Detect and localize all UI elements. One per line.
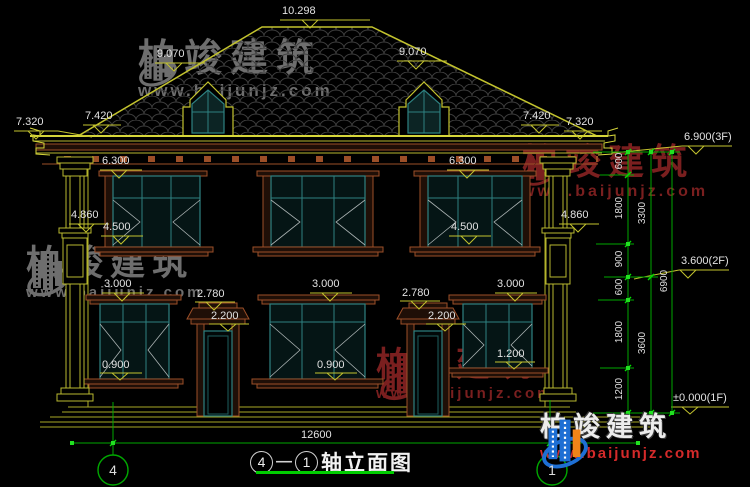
elevation-label-win1f-sill-center: 0.900 <box>317 360 345 371</box>
footer-brand: 柏竣建筑 www.baijunjz.com <box>540 413 701 462</box>
elevation-label-door-cap-right: 2.780 <box>402 288 430 299</box>
elevation-label-ridge: 10.298 <box>282 6 316 17</box>
dim-seg-1800-lower: 1800 <box>615 310 625 354</box>
elevation-label-roof-left: 9.070 <box>157 49 185 60</box>
elevation-label-door-head-left: 2.200 <box>211 311 239 322</box>
elevation-label-roof-right: 9.070 <box>399 47 427 58</box>
dim-overall-6900: 6900 <box>660 259 670 303</box>
window-1f-center <box>252 295 383 388</box>
title-underline <box>256 471 394 474</box>
elevation-label-win1f-head-left: 3.000 <box>104 279 132 290</box>
elevation-label-eave-outer-right: 7.320 <box>566 117 594 128</box>
elevation-label-3f: 6.900(3F) <box>684 132 732 143</box>
elevation-label-door-head-right: 2.200 <box>428 311 456 322</box>
hip-roof <box>78 27 597 136</box>
window-1f-right <box>447 295 548 377</box>
axis-number-right: 1 <box>544 463 560 477</box>
elevation-label-eave-inner-left: 7.420 <box>85 111 113 122</box>
elevation-label-win1f-head-center: 3.000 <box>312 279 340 290</box>
window-2f-right <box>410 171 540 256</box>
elevation-label-2f: 3.600(2F) <box>681 256 729 267</box>
dim-seg-1200: 1200 <box>615 367 625 411</box>
elevation-label-win1f-sill-right: 1.200 <box>497 349 525 360</box>
dim-seg-600-top: 600 <box>615 139 625 183</box>
axis-number-left: 4 <box>105 463 121 477</box>
elevation-label-column-band-left: 4.860 <box>71 210 99 221</box>
cad-elevation-drawing: 柏竣建筑 www.baijunjz.com 柏竣建筑 www.baijunjz.… <box>0 0 750 487</box>
title-dash: — <box>276 453 292 471</box>
window-1f-left <box>84 295 183 388</box>
window-2f-left <box>95 171 213 256</box>
elevation-label-win1f-head-right: 3.000 <box>497 279 525 290</box>
dim-subtotal-3300: 3300 <box>638 191 648 235</box>
dim-subtotal-3600: 3600 <box>638 321 648 365</box>
elevation-label-win1f-sill-left: 0.900 <box>102 360 130 371</box>
window-2f-center <box>253 171 383 256</box>
elevation-label-column-band-right: 4.860 <box>561 210 589 221</box>
elevation-label-eave-outer-left: 7.320 <box>16 117 44 128</box>
elevation-label-1f: ±0.000(1F) <box>673 393 727 404</box>
elevation-label-win2f-head-right: 6.300 <box>449 156 477 167</box>
dim-seg-1800-upper: 1800 <box>615 186 625 230</box>
elevation-label-win2f-sill-left: 4.500 <box>103 222 131 233</box>
elevation-label-door-cap-left: 2.780 <box>197 289 225 300</box>
elevation-label-win2f-head-left: 6.300 <box>102 156 130 167</box>
dim-seg-600-mid: 600 <box>615 265 625 309</box>
elevation-label-eave-inner-right: 7.420 <box>523 111 551 122</box>
dim-total-width: 12600 <box>301 430 332 441</box>
elevation-label-win2f-sill-right: 4.500 <box>451 222 479 233</box>
